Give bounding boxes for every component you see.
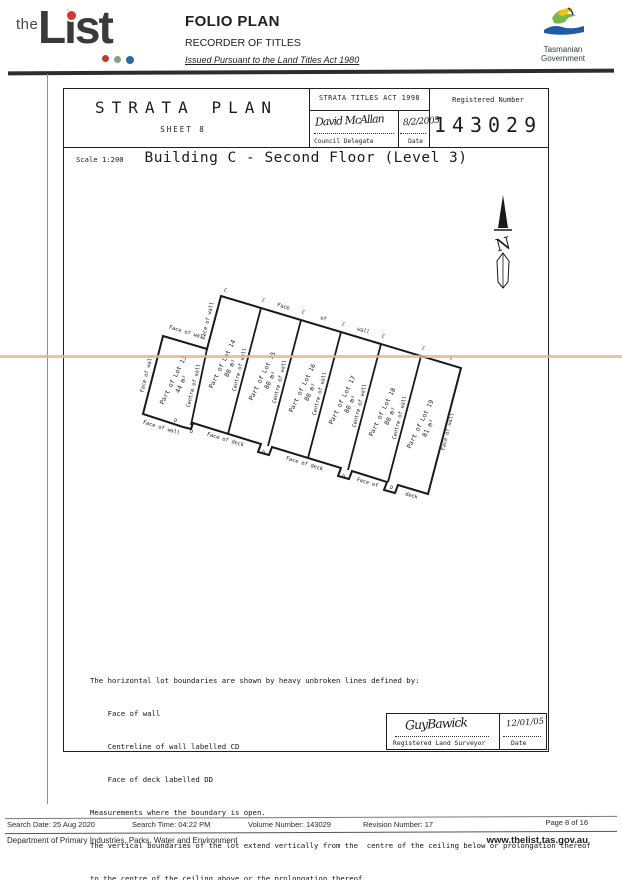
edge-label-face: Face [276, 302, 290, 311]
logo-dot-olive-icon [114, 56, 121, 63]
edge-label-c: C [223, 288, 228, 295]
north-label: N [494, 233, 513, 256]
surveyor-signature-line [395, 736, 489, 737]
volume-number: Volume Number: 143029 [248, 820, 331, 829]
folio-plan-page: the List FOLIO PLAN RECORDER OF TITLES I… [0, 0, 622, 880]
edge-label-c: C [341, 322, 346, 329]
edge-label-d: D [189, 429, 194, 436]
edge-label-face_wall: Face of wall [440, 412, 455, 451]
tasmanian-government-logo: Tasmanian Government [522, 4, 604, 63]
page-number: Page 8 of 16 [545, 818, 588, 827]
note-line: The horizontal lot boundaries are shown … [90, 675, 591, 686]
lot-label: Part of Lot 1981 m² [406, 399, 444, 454]
issued-pursuant-line: Issued Pursuant to the Land Titles Act 1… [185, 55, 359, 65]
surveyor-date-label: Date [511, 739, 526, 747]
logo-dot-blue-icon [126, 56, 134, 64]
surveyor-date-line [503, 736, 541, 737]
note-line: Face of deck labelled DD [90, 774, 591, 785]
page-title: FOLIO PLAN [185, 13, 280, 30]
gov-name-line2: Government [522, 54, 604, 63]
tasmanian-government-icon [538, 4, 588, 40]
page-subtitle: RECORDER OF TITLES [185, 37, 301, 49]
edge-label-d: D [389, 485, 394, 492]
edge-label-c: C [381, 334, 386, 341]
logo-dot-red-icon [102, 55, 109, 62]
revision-number: Revision Number: 17 [363, 820, 433, 829]
scan-page-edge [47, 74, 48, 804]
gov-name-line1: Tasmanian [522, 45, 604, 54]
edge-label-face_deck: Face of deck [285, 456, 324, 473]
edge-label-wall: wall [356, 326, 370, 335]
search-time: Search Time: 04:22 PM [132, 820, 210, 829]
strata-diagram: N Face of wallFace of wallFace of wallFa… [64, 89, 548, 751]
boundary-notes: The horizontal lot boundaries are shown … [90, 653, 591, 880]
website-url: www.thelist.tas.gov.au [487, 835, 588, 846]
plan-sheet-frame: STRATA PLAN SHEET 8 STRATA TITLES ACT 19… [63, 88, 549, 752]
thelist-logo-list: List [38, 0, 112, 54]
surveyor-label: Registered Land Surveyor [393, 739, 485, 747]
edge-label-c: C [421, 346, 426, 353]
surveyor-date-divider [499, 714, 500, 749]
edge-label-of: of [319, 315, 327, 323]
surveyor-box: GuyBawick 12/01/05 Registered Land Surve… [386, 713, 547, 750]
logo-red-dot-icon [67, 11, 76, 20]
note-line: to the centre of the ceiling above or th… [90, 873, 591, 880]
edge-label-d: D [173, 418, 178, 425]
surveyor-signature: GuyBawick [405, 714, 468, 732]
edge-label-deck: deck [404, 491, 419, 501]
edge-label-face_deck: Face of deck [206, 432, 245, 449]
scan-orange-line [0, 355, 622, 358]
department-name: Department of Primary Industries, Parks,… [7, 836, 237, 845]
header-rule [8, 69, 614, 76]
edge-label-c: C [301, 310, 306, 317]
surveyor-date-value: 12/01/05 [506, 717, 545, 730]
edge-label-c: C [261, 298, 266, 305]
thelist-logo-the: the [16, 16, 38, 33]
search-date: Search Date: 25 Aug 2020 [7, 820, 95, 829]
